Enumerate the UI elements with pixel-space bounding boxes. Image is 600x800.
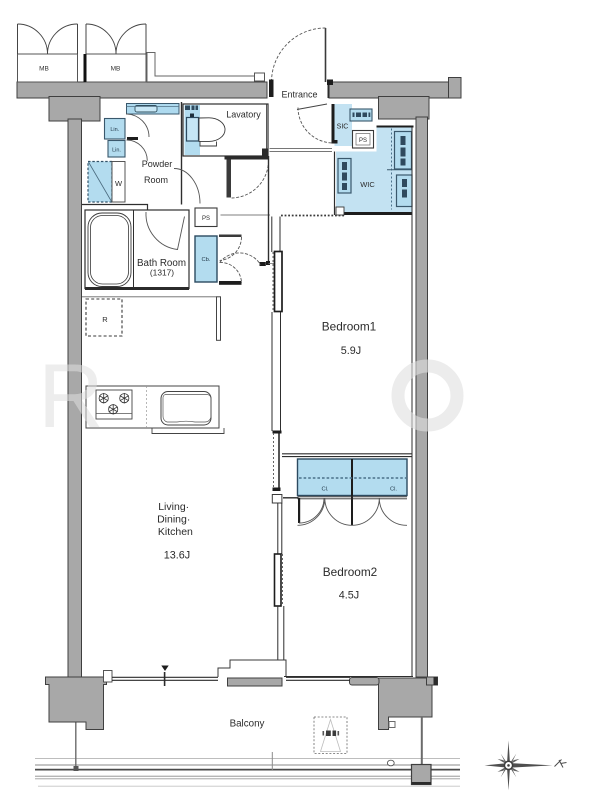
- svg-text:Bedroom1: Bedroom1: [322, 320, 376, 334]
- svg-text:PS: PS: [202, 216, 210, 222]
- svg-text:Powder: Powder: [142, 159, 173, 169]
- svg-text:MB: MB: [111, 66, 121, 73]
- svg-text:R: R: [102, 315, 108, 324]
- svg-text:13.6J: 13.6J: [164, 550, 190, 562]
- svg-text:MB: MB: [39, 66, 49, 73]
- svg-text:Kitchen: Kitchen: [158, 526, 193, 538]
- svg-text:Balcony: Balcony: [230, 719, 265, 730]
- svg-text:Bedroom2: Bedroom2: [323, 565, 377, 579]
- svg-text:4.5J: 4.5J: [339, 590, 359, 602]
- svg-text:WIC: WIC: [360, 180, 375, 189]
- svg-text:Cl.: Cl.: [321, 487, 328, 493]
- svg-text:Room: Room: [144, 175, 168, 185]
- svg-text:W: W: [115, 179, 123, 188]
- svg-text:SIC: SIC: [337, 124, 349, 131]
- svg-text:Entrance: Entrance: [281, 90, 317, 100]
- svg-text:Lin.: Lin.: [112, 148, 121, 154]
- svg-text:Living·: Living·: [158, 501, 189, 513]
- svg-text:Cl.: Cl.: [390, 487, 397, 493]
- svg-text:(1317): (1317): [150, 268, 174, 278]
- svg-text:Lin.: Lin.: [110, 127, 119, 133]
- svg-text:PS: PS: [359, 138, 367, 144]
- svg-text:Lavatory: Lavatory: [226, 110, 261, 120]
- svg-text:5.9J: 5.9J: [341, 345, 361, 357]
- svg-text:Cb.: Cb.: [201, 257, 210, 263]
- svg-text:R: R: [38, 346, 104, 447]
- svg-text:Dining·: Dining·: [157, 514, 190, 526]
